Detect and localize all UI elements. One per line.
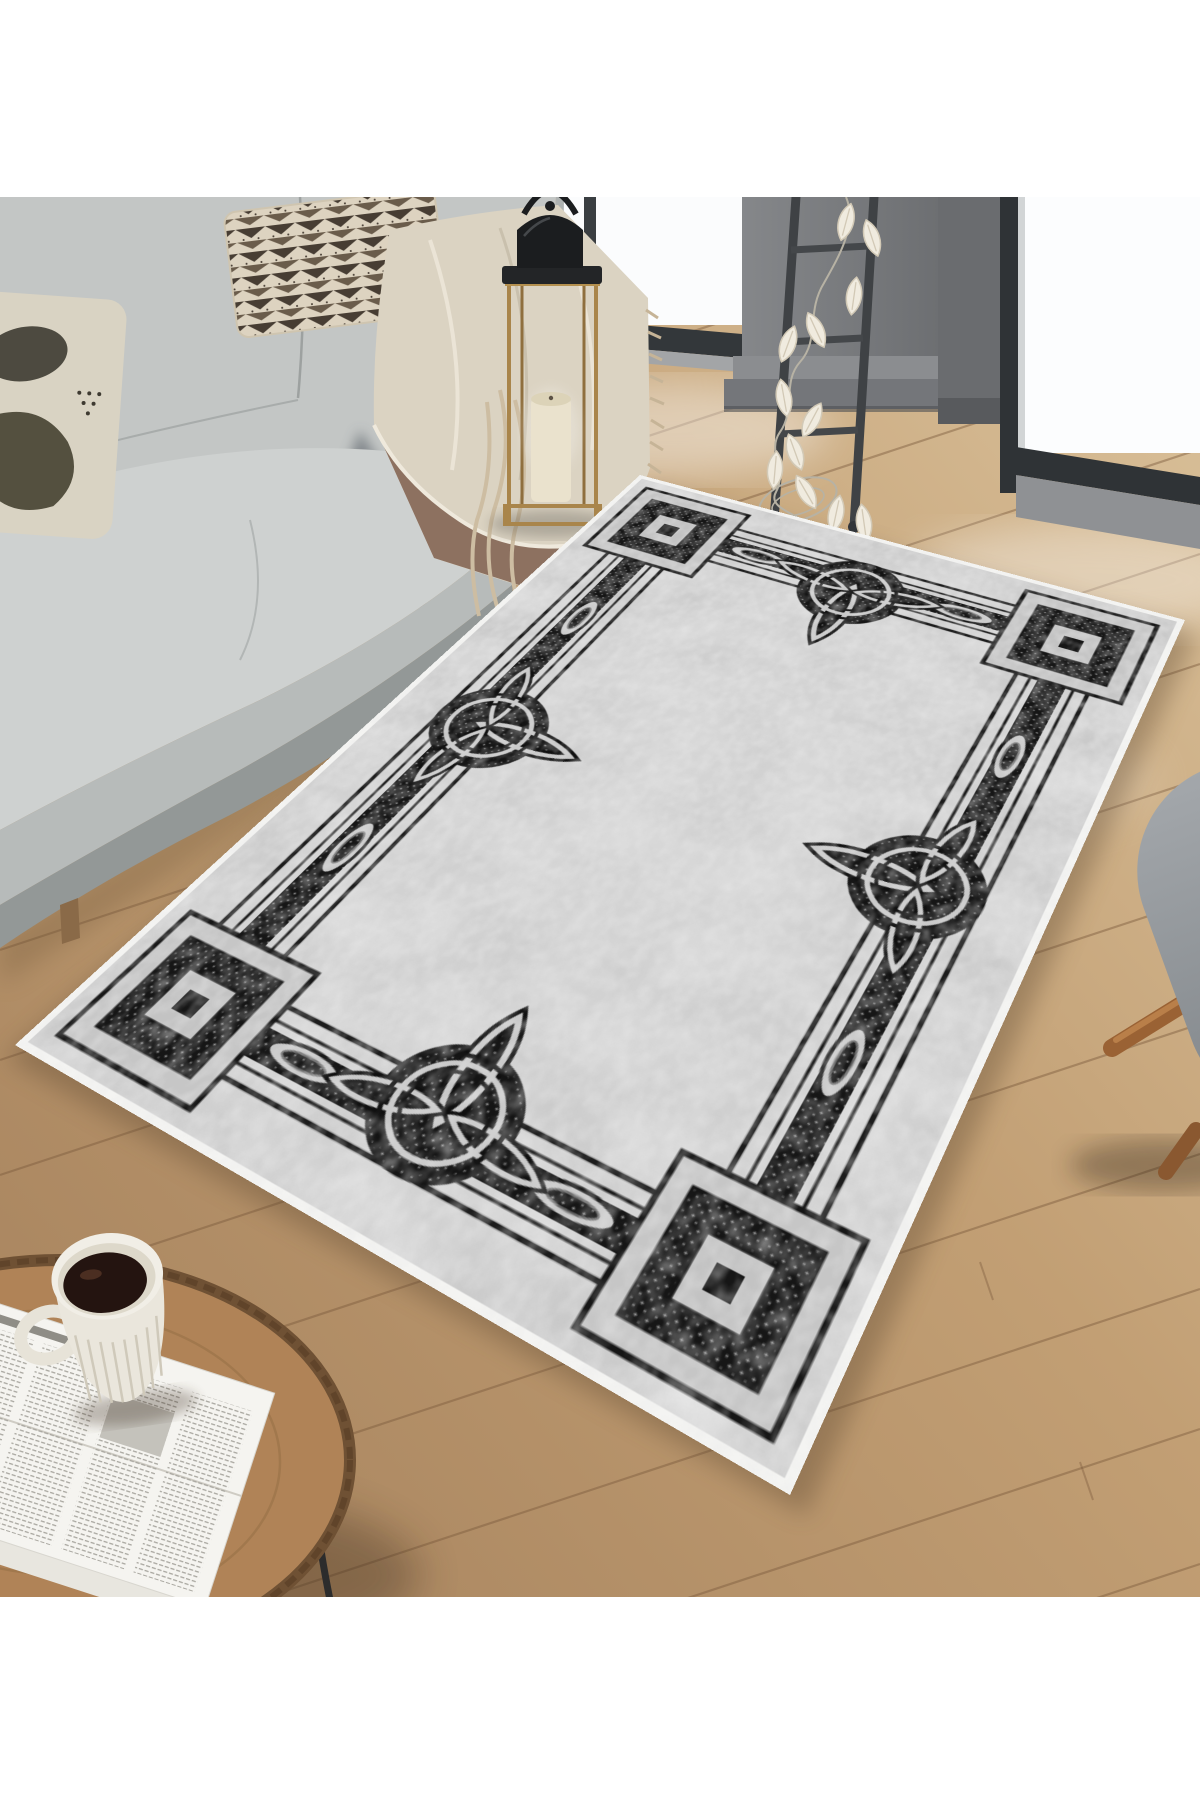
- product-photo-canvas: [0, 0, 1200, 1800]
- scene-foreground-layer: [0, 197, 1200, 1597]
- stool-leg: [1112, 1002, 1186, 1048]
- stool: [1070, 716, 1200, 1191]
- scene-foreground: [0, 197, 1200, 1597]
- stool-cushion: [1106, 716, 1200, 1143]
- lifestyle-photo: [0, 197, 1200, 1597]
